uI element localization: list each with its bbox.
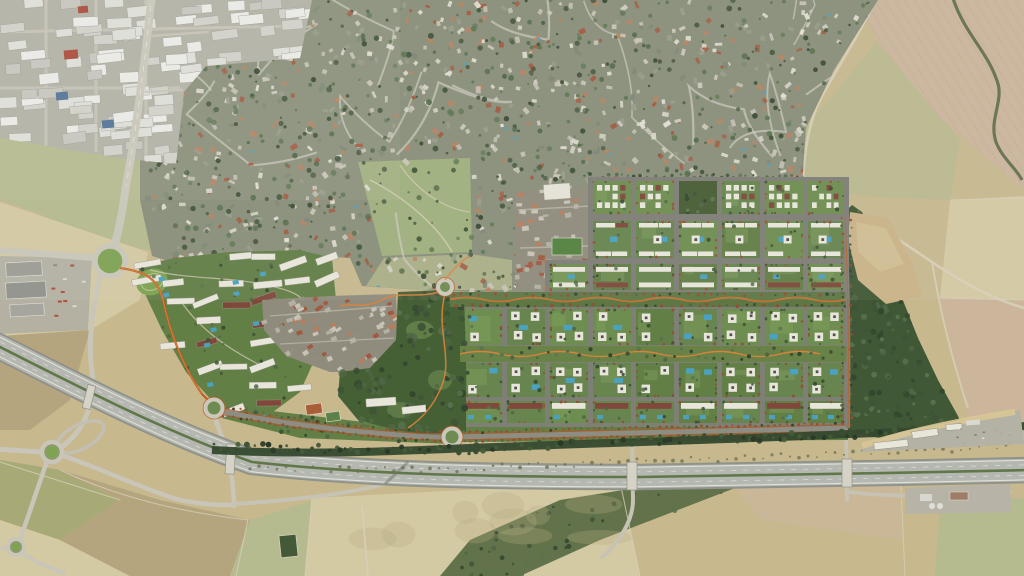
- aerial-map-canvas: [0, 0, 1024, 576]
- masterplan-aerial-image: [0, 0, 1024, 576]
- atmosphere-overlay: [0, 0, 1024, 576]
